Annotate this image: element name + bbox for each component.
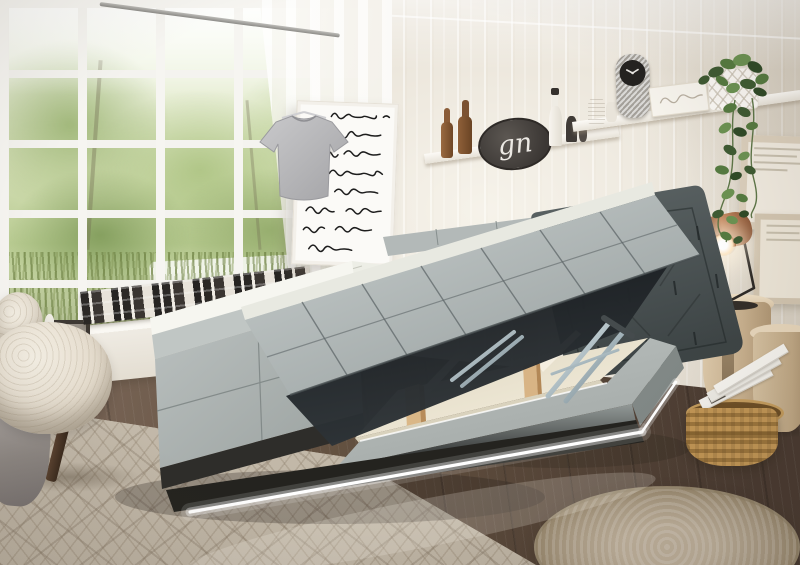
interior-front-wall bbox=[355, 380, 604, 443]
photo-bedroom-scene: gn bbox=[0, 0, 800, 565]
window-muntins bbox=[0, 0, 392, 348]
mattress-topper-top bbox=[150, 261, 432, 334]
divider-wood bbox=[523, 362, 538, 402]
wooden-bottle-neck bbox=[462, 100, 469, 120]
window bbox=[0, 0, 392, 348]
lifted-mattress-lid bbox=[245, 195, 700, 395]
clock-hands bbox=[619, 60, 646, 87]
tree-foliage bbox=[10, 170, 190, 300]
floating-shelf-right bbox=[572, 90, 800, 132]
frame-print-line bbox=[754, 161, 800, 165]
clock-face bbox=[619, 60, 646, 87]
magazine bbox=[699, 365, 774, 411]
window-glare bbox=[0, 0, 392, 95]
magazine-cover-photo bbox=[708, 390, 725, 404]
dark-vase bbox=[566, 116, 577, 142]
stool-shadow bbox=[698, 406, 784, 422]
handwriting-lines bbox=[292, 101, 396, 264]
led-glow-outer bbox=[190, 432, 642, 512]
script-plaque: gn bbox=[475, 114, 555, 175]
led-strip-corner bbox=[642, 382, 676, 432]
tree-foliage bbox=[170, 170, 370, 290]
garden-bench bbox=[149, 254, 303, 300]
lamp-shade-copper bbox=[697, 209, 755, 253]
white-bottle bbox=[549, 106, 562, 146]
photo-vignette bbox=[0, 0, 800, 565]
wood-stool-small bbox=[753, 332, 800, 432]
frame-print-line bbox=[754, 154, 797, 158]
tshirt-shadow bbox=[294, 119, 334, 156]
pouf-leg bbox=[10, 420, 29, 471]
headboard bbox=[531, 186, 742, 381]
divider-panel bbox=[421, 343, 472, 396]
white-bottle-neck bbox=[552, 92, 558, 110]
lamp-base bbox=[714, 301, 758, 310]
tree-trunk bbox=[245, 100, 261, 250]
divider-wood-side bbox=[536, 362, 542, 398]
lamp-light bbox=[710, 234, 736, 256]
topper-quilting bbox=[168, 266, 420, 330]
frame-print-line bbox=[767, 225, 800, 228]
ceiling-line bbox=[378, 14, 800, 40]
grey-bag bbox=[0, 384, 54, 508]
magazine bbox=[713, 344, 788, 395]
tree-foliage bbox=[0, 40, 170, 210]
rim-highlight bbox=[360, 383, 607, 441]
white-vase-small bbox=[44, 314, 55, 344]
basket-band bbox=[686, 432, 778, 438]
sign-script bbox=[650, 82, 707, 114]
wood-floor bbox=[0, 330, 800, 565]
lamp-stand bbox=[690, 210, 770, 310]
table-clock bbox=[615, 53, 651, 118]
strut-bracket bbox=[604, 318, 632, 336]
plaque-text: gn bbox=[496, 127, 534, 162]
storage-rim-top bbox=[336, 338, 676, 468]
divider-panel bbox=[538, 330, 581, 372]
wall-corner bbox=[372, 0, 398, 352]
sheepskin-back bbox=[0, 288, 48, 366]
trailing-plant bbox=[690, 50, 800, 250]
headboard-creases bbox=[560, 240, 700, 336]
storage-bed bbox=[0, 0, 800, 565]
wood-stool bbox=[703, 302, 771, 414]
mattress-topper-side bbox=[150, 261, 354, 335]
base-recess-band bbox=[166, 420, 644, 512]
bottle-cap bbox=[551, 88, 559, 95]
base-seams bbox=[157, 329, 360, 441]
lamp-glow bbox=[642, 204, 762, 300]
window-ledge bbox=[40, 297, 354, 388]
book-row bbox=[80, 266, 312, 325]
bed-shadow bbox=[430, 428, 690, 468]
led-strip bbox=[190, 432, 642, 512]
lid-seams bbox=[302, 212, 645, 375]
wood-stool-small-top bbox=[750, 324, 800, 342]
wooden-bottle bbox=[458, 116, 472, 154]
frame-print-line bbox=[766, 239, 800, 242]
lid-center-seam bbox=[267, 225, 677, 357]
storage-rim-right bbox=[632, 346, 684, 426]
frame-print-line bbox=[754, 147, 800, 151]
pouf-shadow bbox=[0, 462, 140, 492]
tree-foliage bbox=[230, 60, 400, 210]
divider-wood-side bbox=[419, 384, 426, 424]
plant-leaves bbox=[697, 53, 771, 246]
rattan-basket bbox=[686, 408, 778, 466]
wooden-bottle bbox=[441, 122, 453, 158]
picture-frame bbox=[753, 213, 800, 304]
bed-plinth bbox=[160, 413, 365, 489]
bag-handle bbox=[2, 354, 46, 406]
curtain-rod bbox=[99, 2, 339, 38]
lid-topper-edge bbox=[241, 182, 655, 320]
white-pot-small bbox=[606, 102, 617, 122]
wallpaper-wall bbox=[376, 0, 800, 565]
divider-wood bbox=[405, 384, 421, 428]
stool-handle-slot bbox=[722, 330, 734, 396]
wall-art-canvas bbox=[291, 100, 399, 267]
gas-strut-left bbox=[452, 332, 522, 386]
strut-crossbar bbox=[552, 350, 618, 374]
grasses bbox=[0, 252, 392, 348]
lid-underside-shadow bbox=[286, 260, 672, 446]
round-rug bbox=[534, 486, 800, 565]
far-bed-rail bbox=[383, 203, 650, 256]
floating-shelf-left bbox=[424, 127, 619, 164]
bed-base-front bbox=[155, 299, 363, 468]
script-sign bbox=[648, 81, 709, 118]
storage-interior bbox=[355, 338, 648, 438]
white-vase bbox=[26, 300, 41, 344]
pouf-leg bbox=[45, 424, 70, 483]
frame-print-line bbox=[753, 168, 787, 171]
wood-stool-top bbox=[700, 294, 774, 314]
patterned-rug bbox=[0, 0, 800, 565]
rattan-basket-opening bbox=[686, 399, 784, 427]
hanger-icon bbox=[282, 112, 326, 118]
wooden-bottle-neck bbox=[444, 108, 450, 126]
led-glow bbox=[190, 432, 642, 512]
tree-trunk bbox=[85, 60, 102, 250]
headboard-piping bbox=[548, 208, 726, 368]
mattress-band bbox=[152, 277, 357, 359]
white-pot bbox=[588, 98, 605, 124]
magazine bbox=[706, 354, 781, 402]
gas-strut-right bbox=[548, 324, 624, 401]
sheepskin-pouf bbox=[0, 322, 112, 434]
bed-shadow bbox=[115, 470, 545, 524]
lid-bottom-edge bbox=[290, 255, 700, 395]
picture-frame bbox=[738, 135, 800, 232]
wire-plant-basket bbox=[707, 67, 759, 112]
sheer-curtain bbox=[238, 0, 392, 348]
small-picture-frame bbox=[54, 320, 90, 352]
tshirt bbox=[252, 106, 356, 210]
stool-shadow bbox=[752, 424, 800, 438]
rail-seams bbox=[436, 207, 618, 245]
led-floor-glow bbox=[180, 455, 660, 565]
led-glow bbox=[642, 382, 676, 432]
frame-print-line bbox=[766, 232, 799, 235]
dark-vase-small bbox=[579, 126, 587, 142]
headboard-tufting bbox=[568, 226, 718, 359]
storage-rim-front bbox=[336, 404, 636, 486]
tree-foliage bbox=[90, 90, 310, 250]
